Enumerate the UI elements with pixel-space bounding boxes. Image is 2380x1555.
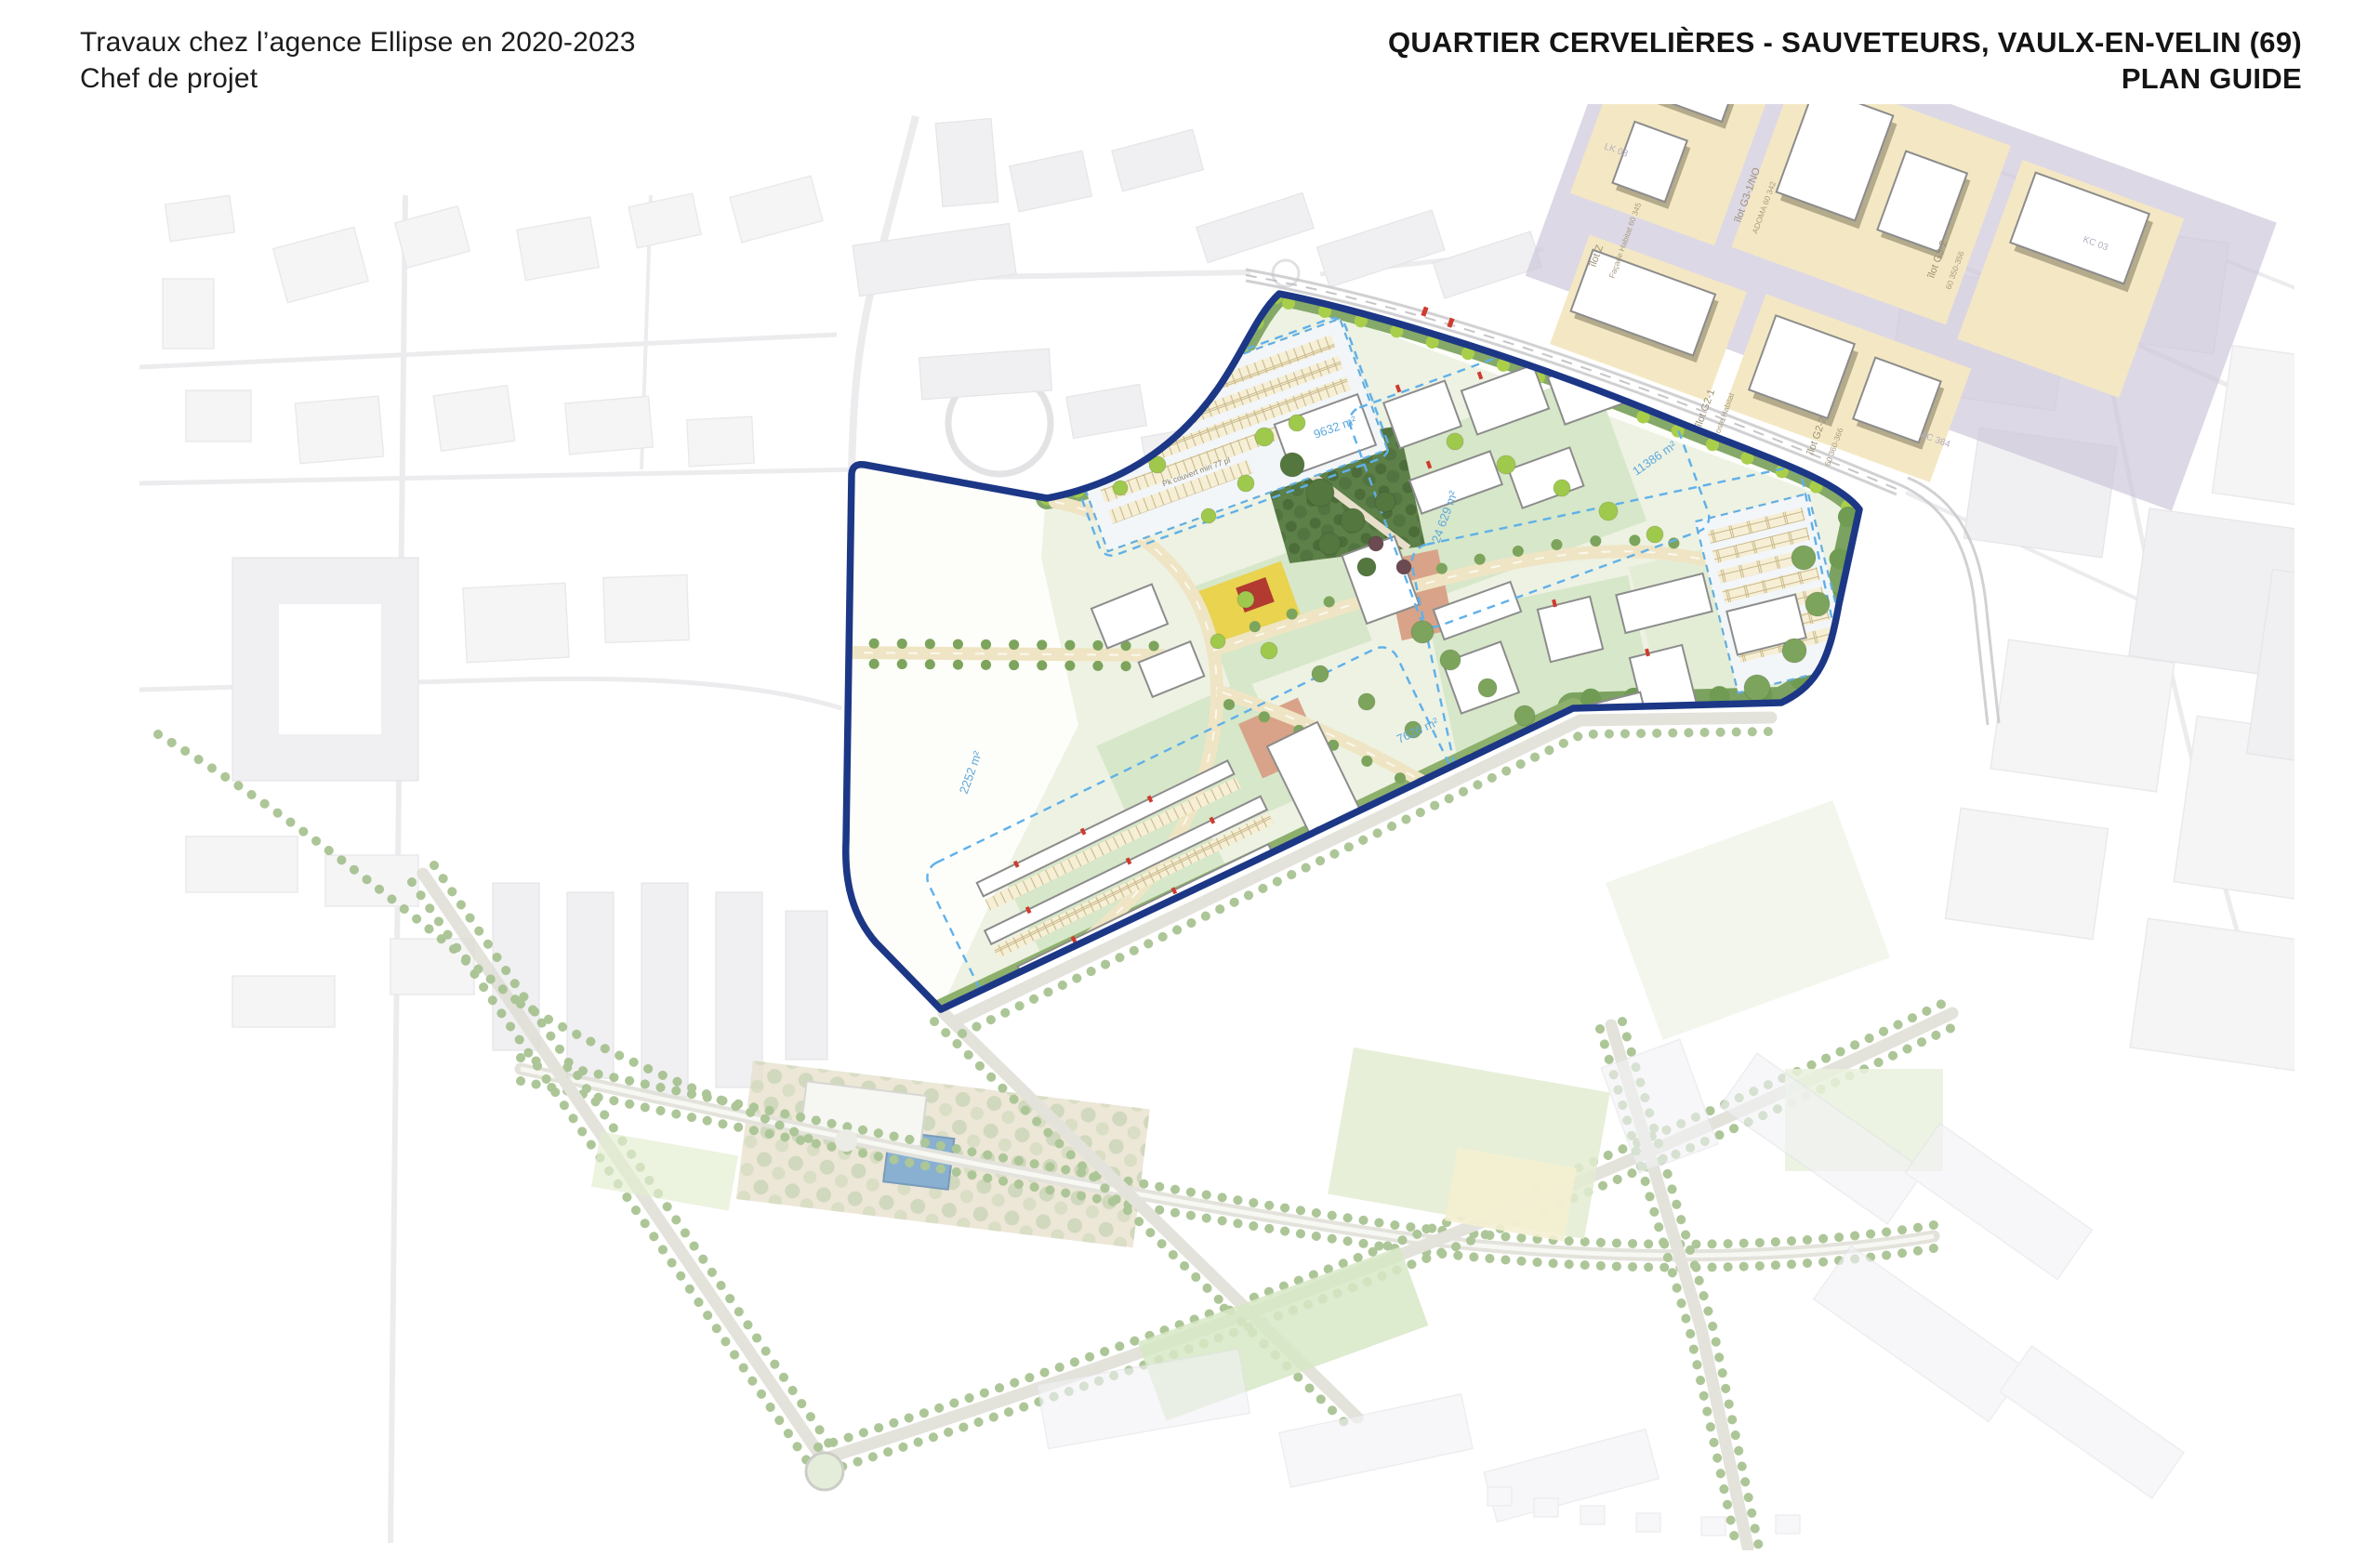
masterplan-map: Pk surface 44x27 m Pk couvert min 77 pl xyxy=(0,0,2380,1550)
